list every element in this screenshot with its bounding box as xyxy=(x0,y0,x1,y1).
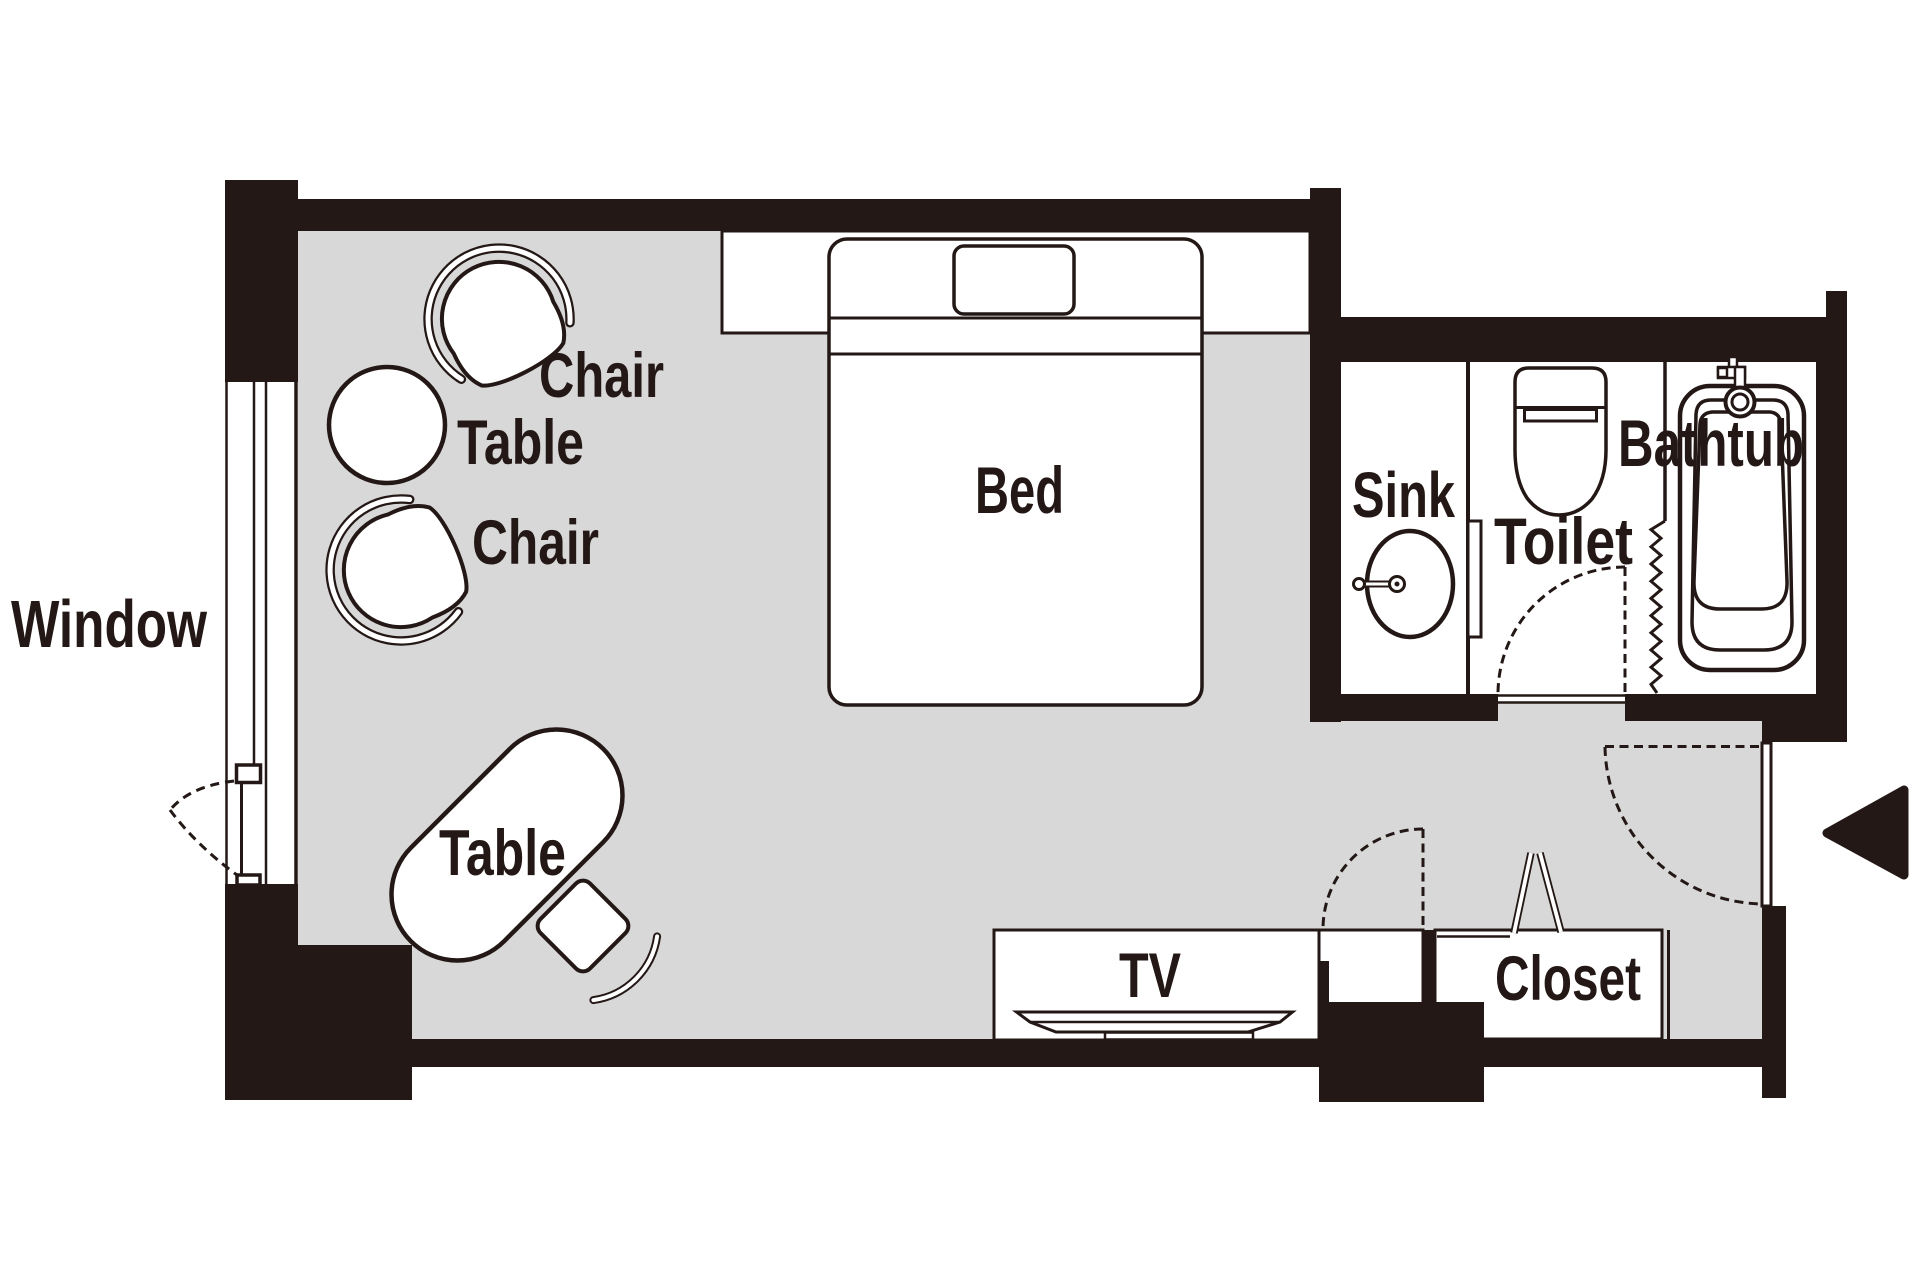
svg-text:Window: Window xyxy=(11,587,208,662)
svg-text:Table: Table xyxy=(457,408,584,478)
svg-text:Toilet: Toilet xyxy=(1494,504,1633,578)
svg-text:Bathtub: Bathtub xyxy=(1618,406,1804,480)
svg-text:Table: Table xyxy=(439,816,566,889)
svg-text:TV: TV xyxy=(1119,941,1181,1011)
svg-text:Bed: Bed xyxy=(975,453,1064,527)
svg-text:Sink: Sink xyxy=(1352,459,1455,531)
svg-text:Chair: Chair xyxy=(472,508,599,578)
svg-text:Closet: Closet xyxy=(1495,944,1641,1014)
svg-text:Chair: Chair xyxy=(539,341,664,411)
